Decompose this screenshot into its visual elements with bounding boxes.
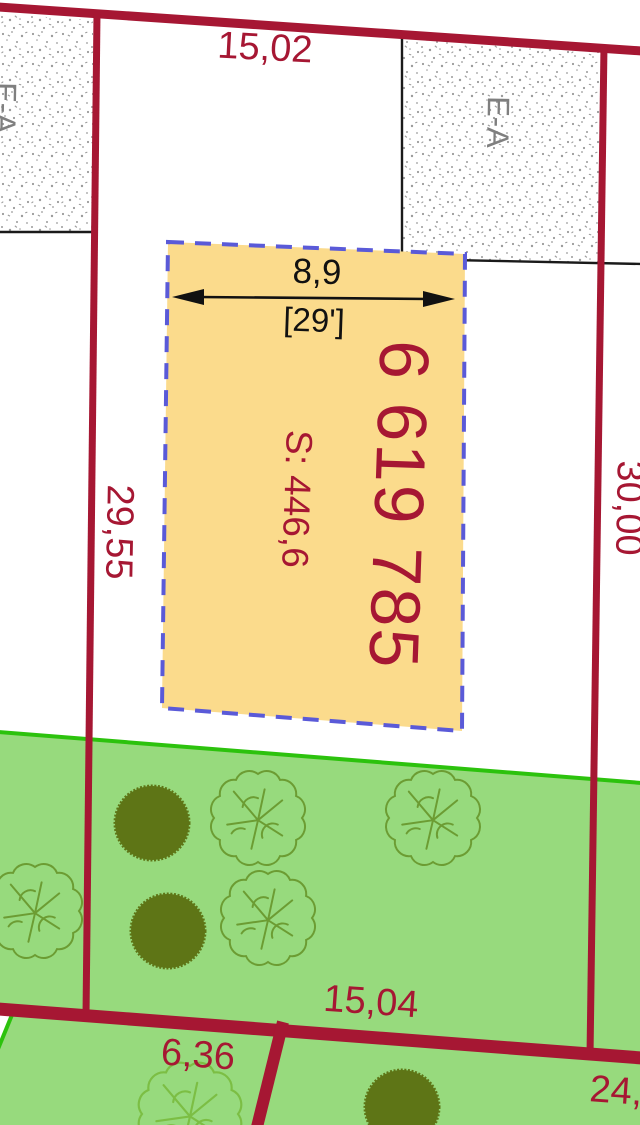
parcel-number-label: 6 619 785 bbox=[358, 339, 439, 671]
zone-label-right: E-A bbox=[482, 96, 514, 148]
cadastral-map[interactable]: 15,02 29,55 30,00 8,9 [29'] 6 619 785 S:… bbox=[0, 0, 640, 1125]
zone-label-left: E-A bbox=[0, 82, 21, 134]
tree-icon bbox=[131, 894, 205, 968]
dimension-label-bottom-left: 6,36 bbox=[160, 1033, 236, 1076]
dimension-label-bottom-right: 24, bbox=[588, 1070, 640, 1112]
dimension-label-width: 8,9 bbox=[292, 254, 342, 291]
tree-icon bbox=[115, 786, 189, 860]
dimension-label-left: 29,55 bbox=[99, 484, 139, 580]
parcel-area-label: S: 446,6 bbox=[276, 429, 318, 568]
map-canvas[interactable] bbox=[0, 0, 640, 1125]
dimension-label-width-feet: [29'] bbox=[283, 302, 345, 337]
vegetation-area[interactable] bbox=[0, 732, 640, 1125]
dimension-label-top: 15,02 bbox=[217, 27, 314, 70]
dimension-label-bottom: 15,04 bbox=[322, 980, 420, 1025]
dimension-label-right: 30,00 bbox=[609, 460, 640, 556]
